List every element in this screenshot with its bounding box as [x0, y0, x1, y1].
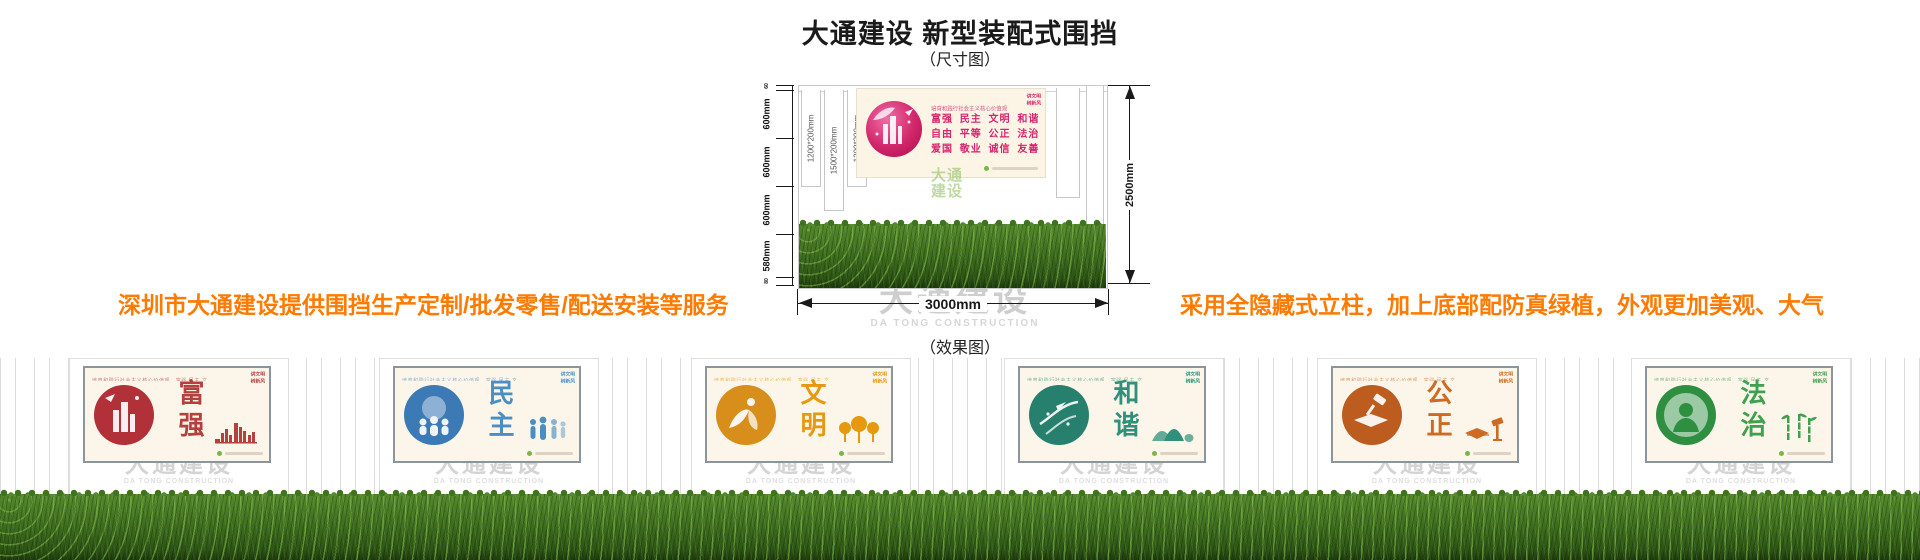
watermark-en-text: DA TONG CONSTRUCTION [1004, 478, 1224, 485]
panel-value-text: 民主 [483, 379, 517, 453]
post-size-label: 1200*200mm [807, 114, 816, 162]
footer-text-bar [1787, 452, 1825, 455]
dim-tick [776, 277, 794, 278]
effect-diagram-caption: （效果图） [0, 334, 1920, 358]
green-dot-icon [839, 451, 844, 456]
watermark-en-text: DA TONG CONSTRUCTION [69, 478, 289, 485]
height-dimension-line [792, 85, 793, 285]
arrow-down-icon [1125, 270, 1135, 283]
poster-badge: 讲文明 树新风 [1017, 94, 1041, 108]
promo-left-text: 深圳市大通建设提供围挡生产定制/批发零售/配送安装等服务 [118, 286, 729, 320]
panel-footer [1465, 451, 1511, 456]
total-width-label: 3000mm [798, 295, 1108, 312]
footer-text-bar [992, 167, 1038, 170]
total-height-label: 2500mm [1117, 150, 1143, 220]
arrow-up-icon [1125, 86, 1135, 99]
fence-bay: 大通建设 DA TONG CONSTRUCTION 培育和践行社会主义核心价值观… [379, 356, 599, 506]
value-panel-fa: 培育和践行社会主义核心价值观 富强 民主 文明 和谐 自由 平等 公正 法治 爱… [1645, 366, 1833, 463]
people-icon [525, 412, 569, 446]
panel-value-text: 公正 [1421, 379, 1455, 453]
fence-bay: 大通建设 DA TONG CONSTRUCTION 培育和践行社会主义核心价值观… [1317, 356, 1537, 506]
panel-circle-art [93, 384, 155, 446]
panel-badge: 讲文明树新风 [241, 372, 265, 386]
fence-bay: 大通建设 DA TONG CONSTRUCTION 培育和践行社会主义核心价值观… [69, 356, 289, 506]
book-gavel-icon [1463, 412, 1507, 446]
dim-tick [776, 285, 794, 286]
post-column-left-1: 1200*200mm [801, 90, 821, 187]
panel-badge: 讲文明树新风 [863, 372, 887, 386]
sizeboard-poster: 培育和践行社会主义核心价值观 富强 民主 文明 和谐 自由 平等 公正 法治 爱… [856, 88, 1046, 178]
height-segment-label: 80 [758, 276, 776, 286]
value-panel-gong: 培育和践行社会主义核心价值观 富强 民主 文明 和谐 自由 平等 公正 法治 爱… [1331, 366, 1519, 463]
panel-footer [527, 451, 573, 456]
panel-badge: 讲文明树新风 [551, 372, 575, 386]
height-segment-label: 600mm [758, 138, 776, 186]
green-dot-icon [217, 451, 222, 456]
size-diagram-caption: （尺寸图） [0, 46, 1920, 70]
poster-values-row: 爱国 敬业 诚信 友善 [931, 142, 1039, 157]
panel-circle-art [715, 384, 777, 446]
hedge-grass-large [0, 494, 1920, 560]
panel-footer [1779, 451, 1825, 456]
dim-tick [776, 186, 794, 187]
footer-text-bar [535, 452, 573, 455]
panel-circle-art [403, 384, 465, 446]
value-panel-he: 培育和践行社会主义核心价值观 富强 民主 文明 和谐 自由 平等 公正 法治 爱… [1018, 366, 1206, 463]
post-column-left-2: 1500*200mm [824, 90, 844, 211]
height-segment-label: 600mm [758, 186, 776, 234]
green-dot-icon [527, 451, 532, 456]
poster-footer [984, 166, 1038, 171]
post-column-right-1 [1056, 88, 1080, 198]
poster-circle-art [865, 100, 923, 158]
watermark-en-text: DA TONG CONSTRUCTION [1317, 478, 1537, 485]
poster-values-row: 富强 民主 文明 和谐 [931, 112, 1039, 127]
dim-tick [1108, 289, 1109, 315]
footer-text-bar [1160, 452, 1198, 455]
footer-text-bar [1473, 452, 1511, 455]
watermark-en-text: DA TONG CONSTRUCTION [1631, 478, 1851, 485]
poster-values-row: 自由 平等 公正 法治 [931, 127, 1039, 142]
footer-text-bar [847, 452, 885, 455]
panel-circle-art [1655, 384, 1717, 446]
dim-tick [776, 90, 794, 91]
poster-core-values: 富强 民主 文明 和谐 自由 平等 公正 法治 爱国 敬业 诚信 友善 [931, 112, 1039, 157]
value-panel-min: 培育和践行社会主义核心价值观 富强 民主 文明 和谐 自由 平等 公正 法治 爱… [393, 366, 581, 463]
value-panel-qiang: 培育和践行社会主义核心价值观 富强 民主 文明 和谐 自由 平等 公正 法治 爱… [83, 366, 271, 463]
height-segment-label: 60 [758, 81, 776, 90]
fence-bay: 大通建设 DA TONG CONSTRUCTION 培育和践行社会主义核心价值观… [691, 356, 911, 506]
panel-value-text: 法治 [1735, 379, 1769, 453]
panel-value-text: 富强 [173, 379, 207, 453]
city-skyline-icon [215, 412, 259, 446]
green-logo-watermark: 大通 建设 [928, 168, 966, 200]
footer-text-bar [225, 452, 263, 455]
panel-footer [839, 451, 885, 456]
bamboo-icon [1777, 412, 1821, 446]
promo-poster: 大通建设 新型装配式围挡 （尺寸图） 1200*200mm 1500*200mm… [0, 0, 1920, 560]
green-dot-icon [1465, 451, 1470, 456]
fence-bay: 大通建设 DA TONG CONSTRUCTION 培育和践行社会主义核心价值观… [1004, 356, 1224, 506]
green-dot-icon [1779, 451, 1784, 456]
value-panel-wen: 培育和践行社会主义核心价值观 富强 民主 文明 和谐 自由 平等 公正 法治 爱… [705, 366, 893, 463]
panel-footer [217, 451, 263, 456]
panel-badge: 讲文明树新风 [1489, 372, 1513, 386]
panel-value-text: 文明 [795, 379, 829, 453]
panel-value-text: 和谐 [1108, 379, 1142, 453]
mountains-icon [1150, 412, 1194, 446]
height-segment-label: 580mm [758, 234, 776, 277]
dim-tick [776, 85, 794, 86]
fence-bay: 大通建设 DA TONG CONSTRUCTION 培育和践行社会主义核心价值观… [1631, 356, 1851, 506]
panel-circle-art [1028, 384, 1090, 446]
watermark-en-text: DA TONG CONSTRUCTION [691, 478, 911, 485]
dim-tick [776, 234, 794, 235]
panel-badge: 讲文明树新风 [1176, 372, 1200, 386]
green-dot-icon [984, 166, 989, 171]
green-dot-icon [1152, 451, 1157, 456]
trees-icon [837, 412, 881, 446]
dim-tick [776, 138, 794, 139]
post-column-right-2 [1086, 86, 1104, 232]
dim-tick [1108, 283, 1150, 284]
panel-footer [1152, 451, 1198, 456]
panel-badge: 讲文明树新风 [1803, 372, 1827, 386]
watermark-en-text: DA TONG CONSTRUCTION [379, 478, 599, 485]
height-segment-label: 600mm [758, 90, 776, 138]
promo-right-text: 采用全隐藏式立柱，加上底部配防真绿植，外观更加美观、大气 [1180, 286, 1824, 320]
watermark-en-text: DA TONG CONSTRUCTION [840, 318, 1070, 329]
post-size-label: 1500*200mm [830, 126, 839, 174]
hedge-grass-small [799, 224, 1106, 288]
panel-circle-art [1341, 384, 1403, 446]
